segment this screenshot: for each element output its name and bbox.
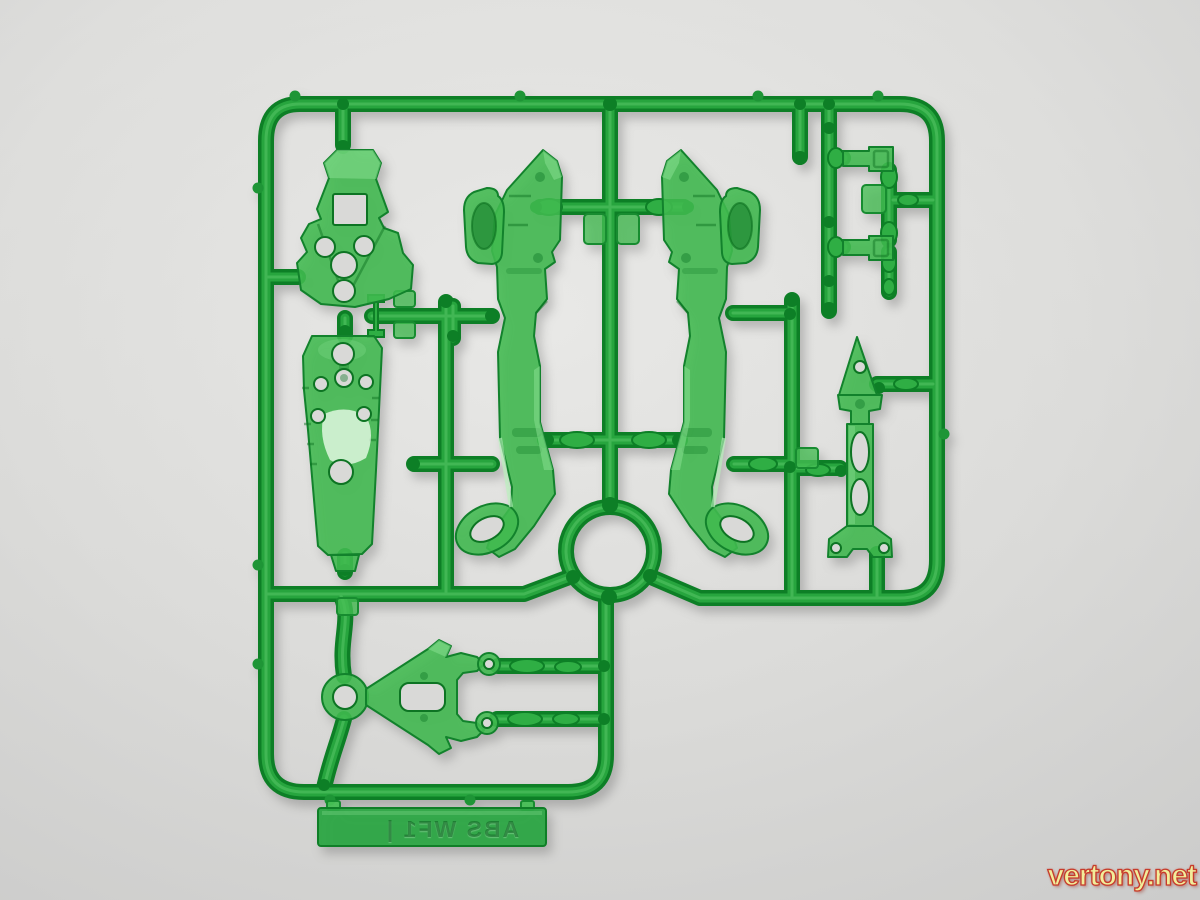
part-core-shield-plate — [302, 336, 382, 571]
sprue-photo — [0, 0, 1200, 900]
part-latch-key-lower — [843, 236, 893, 260]
part-side-armor-right — [662, 150, 777, 565]
part-latch-key-upper — [843, 147, 893, 171]
molded-material-text: ABS WF1 | — [318, 814, 546, 844]
watermark-text: vertony.net — [1048, 859, 1196, 893]
part-side-armor-left — [447, 150, 562, 565]
part-chest-armor-plate — [297, 150, 413, 307]
part-stabilizer-fin — [828, 337, 892, 557]
photo-stage: ABS WF1 | vertony.net — [0, 0, 1200, 900]
